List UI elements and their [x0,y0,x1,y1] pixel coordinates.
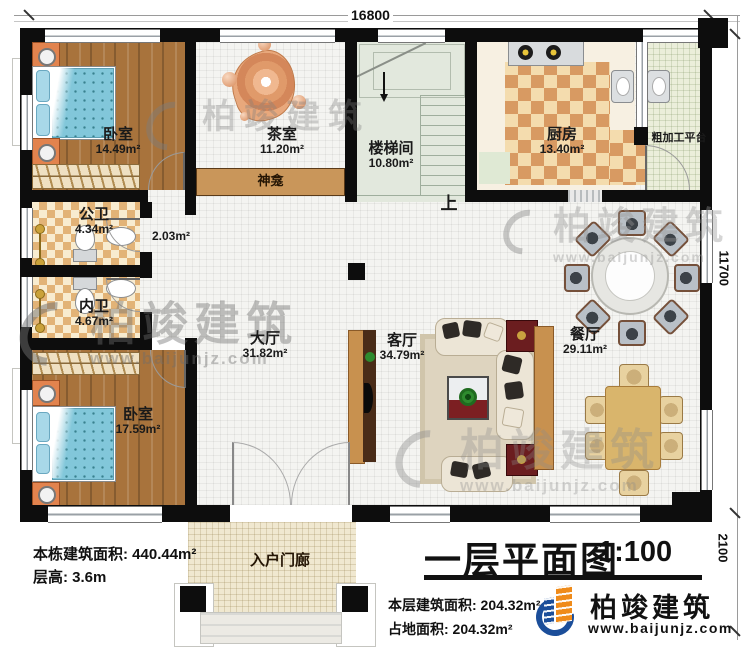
logo-building-icon [556,585,572,623]
stair-arrow-head [380,94,388,102]
wall-stair-left [345,28,357,202]
room-label-inner-bath: 内卫 4.67m² [64,298,124,329]
lamp-icon [38,48,56,66]
window [390,506,450,523]
window [220,29,335,43]
dining-chair [619,470,649,496]
dining-chair [564,264,590,292]
wall-bedroom1-right [185,28,196,215]
room-label-kitchen: 厨房 13.40m² [517,126,607,157]
logo-swoosh-icon [529,591,582,644]
sofa-cushion [504,381,524,400]
room-name: 卧室 [68,126,168,143]
wall-bath-corridor [140,202,152,218]
footprint-area-note: 占地面积: 204.32m² [388,619,512,639]
room-name: 餐厅 [545,326,625,343]
room-name: 茶室 [237,126,327,143]
kitchen-threshold [568,190,602,202]
floor-area-note: 本层建筑面积: 204.32m² [388,595,540,615]
bed-pillow [36,412,50,442]
gold-medallion [517,455,526,464]
sofa-cushion [502,406,525,428]
dining-chair [674,264,700,292]
hall-column [348,263,365,280]
logo-url: www.baijunjz.com [588,620,733,636]
room-area: 4.34m² [64,223,124,237]
stairs-up-label: 上 [436,194,462,214]
room-name: 客厅 [357,332,447,349]
room-label-platform: 粗加工平台 [644,132,714,145]
room-area: 34.79m² [357,349,447,363]
window [48,506,162,523]
sofa-cushion [462,320,482,338]
wall-kitchen-bottom [477,190,568,202]
room-label-tea: 茶室 11.20m² [237,126,327,157]
logo-building-icon-small [544,597,554,624]
kitchen-sink [611,70,634,103]
room-label-hall: 大厅 31.82m² [215,330,315,361]
stove-burner [518,45,533,60]
room-area: 31.82m² [215,347,315,361]
room-area: 13.40m² [517,143,607,157]
title-underline [424,575,702,580]
window [21,95,33,150]
room-name: 大厅 [215,330,315,347]
floor-plan-canvas: 16800 11700 2100 [0,0,750,648]
room-area: 29.11m² [545,343,625,357]
rect-dining-table [605,386,661,470]
room-label-bedroom2: 卧室 17.59m² [88,406,188,437]
room-area: 11.20m² [237,143,327,157]
entrance-opening [230,505,352,522]
room-name: 厨房 [517,126,607,143]
stair-direction-arrow [383,72,385,94]
floor-height-note: 层高: 3.6m [33,566,106,587]
room-area: 4.67m² [64,315,124,329]
room-label-dining: 餐厅 29.11m² [545,326,625,357]
round-table-center [605,251,655,301]
window [21,272,33,327]
room-label-public-bath: 公卫 4.34m² [64,206,124,237]
dining-chair [659,432,683,460]
kitchen-mat [479,152,510,184]
tea-art-dot [240,112,249,121]
wall-platform-bottom [602,190,712,202]
bed-pillow [36,70,50,102]
window [378,29,445,43]
tea-art-dot [222,72,237,87]
room-name: 楼梯间 [346,140,436,157]
dimension-tick [729,507,740,518]
plan-scale: 1:100 [598,536,672,569]
door-gap [152,338,185,350]
room-label-living: 客厅 34.79m² [357,332,447,363]
window [21,390,33,470]
lamp-icon [38,144,56,162]
stove-burner [546,45,561,60]
wall-bedroom2-top [20,338,152,350]
dining-chair [618,210,646,236]
dimension-tick [729,28,740,39]
window [21,208,33,258]
window [45,29,160,43]
wall-stair-right [465,28,477,202]
room-label-stairwell: 楼梯间 10.80m² [346,140,436,171]
window [701,410,713,490]
sofa-cushion [450,461,469,479]
window [550,506,640,523]
shrine-label: 神龛 [196,174,345,189]
room-area: 10.80m² [346,157,436,171]
room-area: 17.59m² [88,423,188,437]
nightstand [32,482,60,506]
sink-basin [652,77,666,96]
corridor-area-label: 2.03m² [141,230,201,244]
wardrobe [32,164,140,189]
table-plant [459,388,477,406]
porch-steps [200,612,342,644]
building-area-note: 本栋建筑面积: 440.44m² [33,543,196,564]
dimension-line-right [737,15,738,640]
shower-rod-end [35,323,45,333]
sink-basin [616,77,630,96]
dining-chair [659,396,683,424]
platform-sink [647,70,670,103]
bed-sheet-fold [52,408,78,478]
room-name: 卧室 [88,406,188,423]
room-name: 公卫 [64,206,124,223]
tea-art-dot [292,95,306,109]
porch-column [342,586,368,612]
partition-glass [636,42,648,127]
dimension-label-bottom-right: 2100 [716,531,731,577]
dimension-label-top: 16800 [348,7,393,23]
porch-column [180,586,206,612]
room-name: 内卫 [64,298,124,315]
wall-bath-divider [20,265,152,277]
window [701,210,713,283]
bed-pillow [36,104,50,136]
dimension-label-right: 11700 [717,248,732,300]
kitchen-rug [505,62,610,185]
wall-bedroom1-bottom [20,190,148,202]
room-area: 14.49m² [68,143,168,157]
room-label-bedroom1: 卧室 14.49m² [68,126,168,157]
lamp-icon [38,385,56,403]
shower-rod-end [35,224,45,234]
corner-jog [672,492,712,506]
shower-rod-end [35,289,45,299]
window [643,29,700,43]
gold-medallion [517,331,526,340]
logo [534,582,586,642]
nightstand [32,138,60,166]
wardrobe [32,352,140,375]
lamp-icon [38,486,56,504]
bed-pillow [36,444,50,474]
porch-label: 入户门廊 [220,552,340,569]
nightstand [32,380,60,406]
